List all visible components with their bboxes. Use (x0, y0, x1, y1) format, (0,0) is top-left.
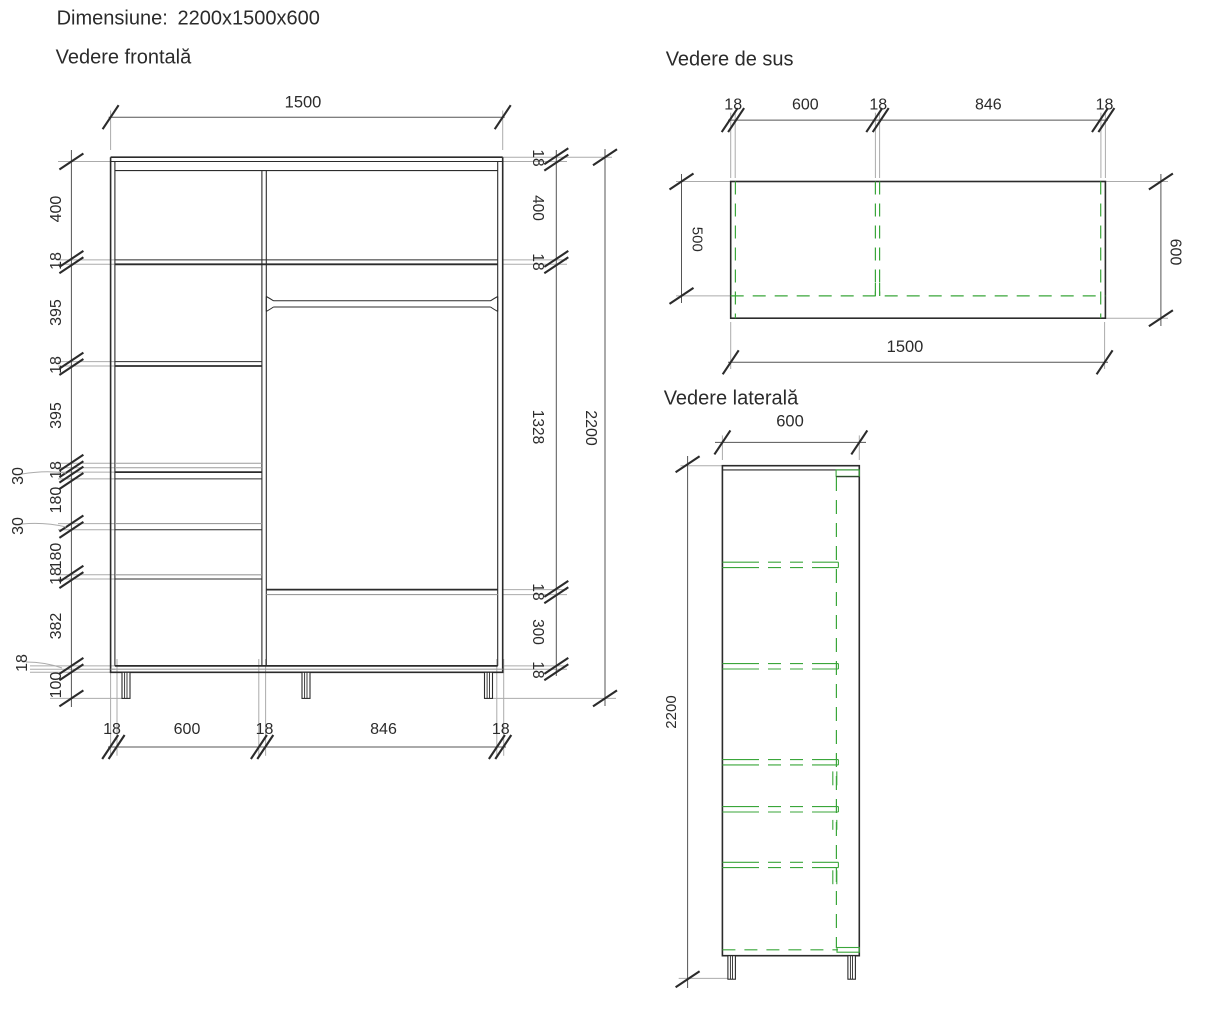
svg-text:395: 395 (48, 299, 65, 326)
svg-text:1500: 1500 (887, 338, 924, 356)
svg-text:100: 100 (48, 672, 65, 699)
svg-text:300: 300 (529, 619, 546, 645)
svg-text:18: 18 (48, 461, 65, 479)
svg-text:Vedere de sus: Vedere de sus (666, 48, 794, 70)
svg-text:18: 18 (103, 721, 121, 738)
svg-text:846: 846 (370, 721, 397, 738)
svg-text:1328: 1328 (529, 410, 546, 444)
svg-text:1500: 1500 (285, 94, 322, 112)
svg-text:18: 18 (492, 721, 510, 738)
svg-text:400: 400 (48, 196, 65, 223)
svg-text:18: 18 (529, 661, 546, 678)
svg-text:Vedere laterală: Vedere laterală (664, 388, 799, 410)
svg-text:600: 600 (1167, 239, 1184, 266)
svg-text:180: 180 (48, 487, 65, 514)
svg-text:18: 18 (529, 253, 546, 270)
svg-text:18: 18 (48, 252, 65, 270)
svg-text:30: 30 (10, 467, 27, 485)
svg-text:400: 400 (529, 195, 546, 221)
svg-text:600: 600 (792, 96, 819, 113)
svg-text:Dimensiune:: Dimensiune: (57, 8, 168, 30)
svg-text:180: 180 (48, 543, 65, 570)
svg-text:2200: 2200 (582, 410, 599, 446)
svg-text:Vedere frontală: Vedere frontală (56, 47, 193, 69)
svg-text:2200: 2200 (663, 695, 680, 728)
svg-text:18: 18 (1096, 96, 1114, 113)
svg-text:18: 18 (529, 583, 546, 600)
svg-text:846: 846 (975, 96, 1002, 113)
svg-text:18: 18 (48, 567, 65, 585)
svg-text:18: 18 (529, 149, 546, 166)
svg-text:600: 600 (776, 412, 804, 430)
svg-text:395: 395 (48, 402, 65, 429)
svg-text:30: 30 (10, 517, 27, 535)
svg-text:2200x1500x600: 2200x1500x600 (178, 8, 320, 30)
svg-text:18: 18 (256, 721, 274, 738)
svg-text:18: 18 (869, 96, 887, 113)
svg-text:18: 18 (14, 654, 31, 672)
svg-text:600: 600 (174, 721, 201, 738)
svg-text:18: 18 (724, 96, 742, 113)
svg-text:500: 500 (689, 227, 706, 252)
svg-text:382: 382 (48, 613, 65, 640)
svg-text:18: 18 (48, 356, 65, 374)
